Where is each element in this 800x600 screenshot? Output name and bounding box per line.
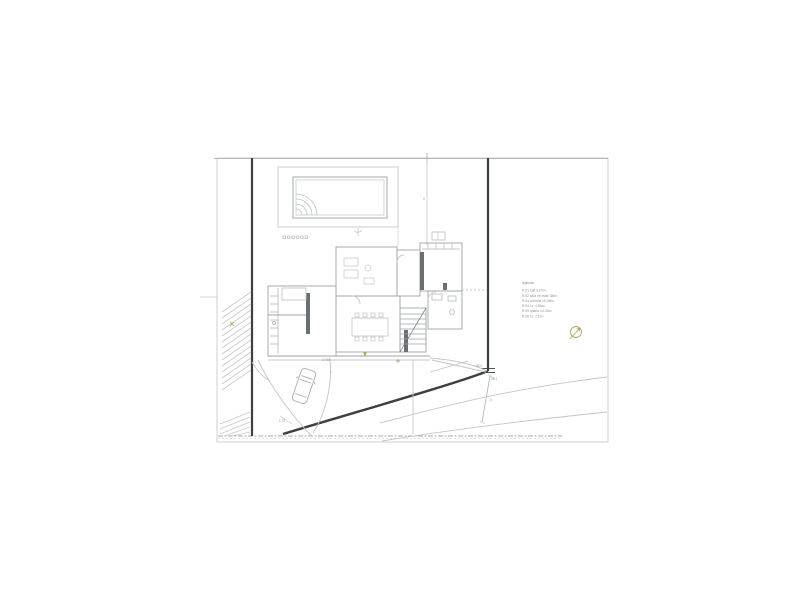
dimension-labels: 9 7 17.08 1.70 +38.4 38.1 5 <box>279 197 497 423</box>
kitchen-counter <box>270 288 278 354</box>
legend-block: legenda R.01 hall 3,27m² R.02 sala de es… <box>522 281 605 320</box>
dim-label: 17.08 <box>322 358 330 362</box>
plot-boundary <box>252 158 495 436</box>
dim-label: 1.70 <box>279 419 285 423</box>
hatch-strip-lower <box>220 412 250 436</box>
legend-item: R.06 i.s. 7,1m² <box>522 314 605 319</box>
legend-title: legenda <box>522 281 605 286</box>
pool <box>278 159 445 247</box>
level-label: +38.4 <box>474 364 482 368</box>
site-plan-drawing: 9 7 17.08 1.70 +38.4 38.1 5 <box>0 0 800 600</box>
compass-icon <box>570 327 582 340</box>
dining-table <box>352 313 388 341</box>
car <box>289 367 319 406</box>
dim-label: 9 <box>423 197 425 201</box>
pool-steps-arcs <box>296 194 317 215</box>
living-furniture <box>344 258 374 284</box>
site-plan-page: 9 7 17.08 1.70 +38.4 38.1 5 legenda R.01… <box>0 0 800 600</box>
dim-label: 5 <box>490 398 492 402</box>
staircase <box>400 308 426 352</box>
bath-fixtures <box>428 292 456 314</box>
plant-symbol <box>354 228 362 236</box>
hatch-strip-upper <box>222 292 251 390</box>
dim-label: 7 <box>330 371 332 375</box>
level-label: 38.1 <box>491 377 497 381</box>
survey-line <box>218 436 562 439</box>
paver-row <box>283 236 308 239</box>
